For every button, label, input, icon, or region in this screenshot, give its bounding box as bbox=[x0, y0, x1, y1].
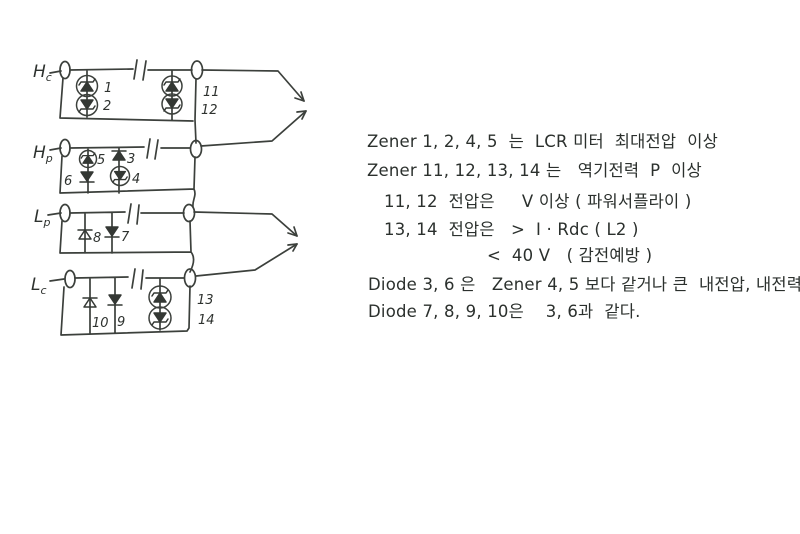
label-zener-12: 12 bbox=[201, 103, 218, 118]
label-diode-10: 10 bbox=[92, 316, 109, 331]
lc-label: Lc bbox=[31, 275, 47, 297]
hc-left-terminal bbox=[60, 62, 70, 79]
label-zener-13: 13 bbox=[197, 293, 214, 308]
hp-label: Hp bbox=[33, 143, 53, 165]
hand-drawn-circuit-note-page: Hc 1 2 11 12 Hp bbox=[0, 0, 800, 534]
row-hc: Hc 1 2 11 12 bbox=[33, 60, 304, 143]
hc-right-terminal bbox=[192, 61, 203, 79]
label-diode-6: 6 bbox=[64, 174, 72, 189]
lp-wires bbox=[48, 212, 297, 272]
zener-4-icon bbox=[113, 172, 127, 183]
lp-capacitor bbox=[128, 204, 139, 224]
row-lc: Lc 10 9 13 14 bbox=[31, 244, 297, 335]
label-zener-1: 1 bbox=[104, 81, 112, 96]
hc-label: Hc bbox=[33, 62, 52, 84]
circuit-sketch: Hc 1 2 11 12 Hp bbox=[0, 0, 800, 534]
label-zener-2: 2 bbox=[103, 99, 111, 114]
label-zener-14: 14 bbox=[198, 313, 215, 328]
label-zener-11: 11 bbox=[203, 85, 220, 100]
hp-capacitor bbox=[147, 139, 158, 159]
hc-capacitor bbox=[134, 60, 146, 80]
diode-7-icon bbox=[105, 227, 119, 237]
note-line-diode-78910: Diode 7, 8, 9, 10은 3, 6과 같다. bbox=[368, 301, 641, 323]
lc-wires bbox=[50, 244, 297, 335]
label-zener-4: 4 bbox=[132, 172, 140, 187]
note-line-1314-voltage-lt: < 40 V ( 감전예방 ) bbox=[487, 245, 652, 267]
note-line-1112-voltage: 11, 12 전압은 V 이상 ( 파워서플라이 ) bbox=[384, 191, 692, 213]
label-diode-3: 3 bbox=[127, 152, 135, 167]
note-line-diode-36: Diode 3, 6 은 Zener 4, 5 보다 같거나 큰 내전압, 내전… bbox=[368, 274, 800, 296]
note-line-zener-1245: Zener 1, 2, 4, 5 는 LCR 미터 최대전압 이상 bbox=[367, 131, 718, 153]
row-lp: Lp 8 7 bbox=[34, 204, 297, 272]
note-line-1314-voltage-gt: 13, 14 전압은 > I · Rdc ( L2 ) bbox=[384, 219, 639, 241]
diode-3-icon bbox=[112, 151, 126, 160]
lp-label: Lp bbox=[34, 207, 50, 229]
lc-left-terminal bbox=[65, 271, 75, 288]
row-hp: Hp 5 6 3 4 bbox=[33, 111, 306, 207]
diode-9-icon bbox=[108, 295, 122, 305]
label-diode-8: 8 bbox=[93, 231, 101, 246]
label-diode-7: 7 bbox=[121, 230, 130, 245]
diode-6-icon bbox=[80, 172, 94, 182]
lc-capacitor bbox=[132, 269, 143, 289]
lp-right-terminal bbox=[184, 205, 195, 222]
note-line-zener-11121314: Zener 11, 12, 13, 14 는 역기전력 P 이상 bbox=[367, 160, 702, 182]
label-diode-9: 9 bbox=[117, 315, 125, 330]
label-zener-5: 5 bbox=[97, 153, 105, 168]
